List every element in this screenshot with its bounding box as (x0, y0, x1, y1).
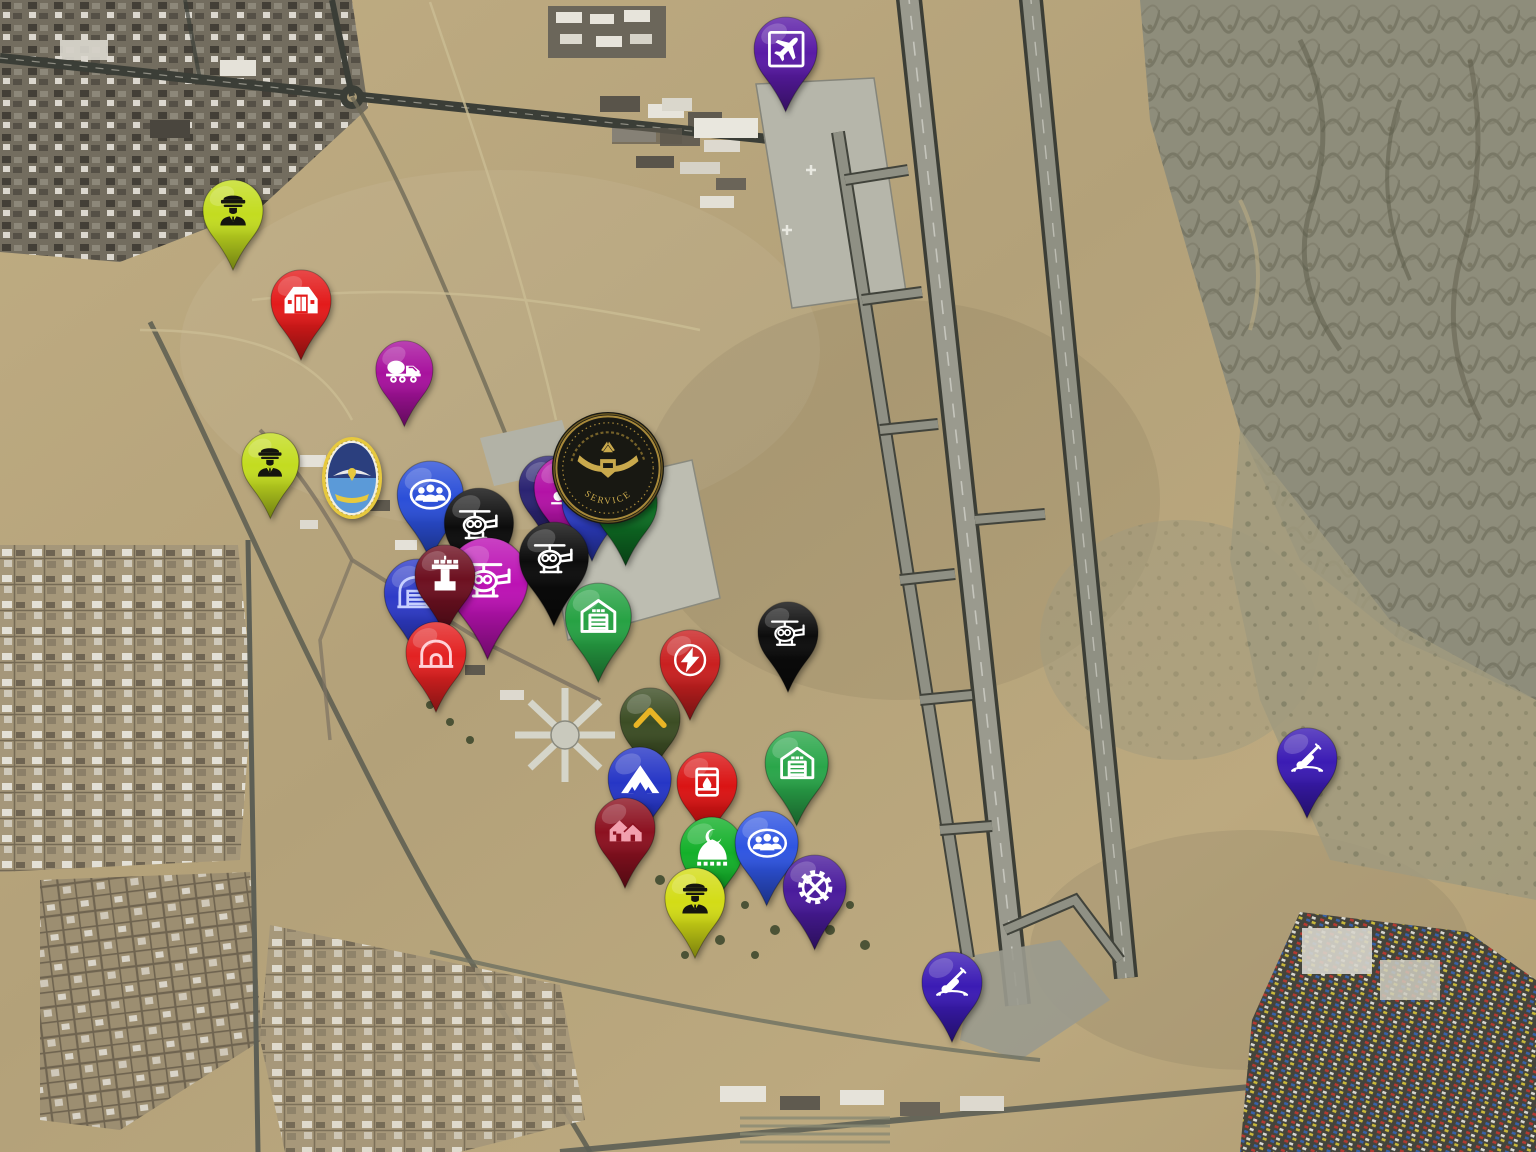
airforce-crest-emblem[interactable] (321, 436, 383, 520)
marker-warehouse-c[interactable] (562, 581, 635, 684)
marker-maintenance[interactable] (780, 853, 849, 952)
marker-airport[interactable] (751, 15, 820, 114)
marker-officer-s[interactable] (662, 866, 728, 960)
satellite-imagery (0, 0, 1536, 1152)
mixer-truck-icon (382, 349, 426, 391)
helicopter-icon (527, 532, 580, 583)
marker-aa-gun-e[interactable] (1274, 726, 1340, 820)
marker-hangar-nw[interactable] (268, 268, 334, 362)
hangar-icon (278, 278, 324, 322)
marker-helicopter-4[interactable] (755, 600, 821, 694)
marker-mixer-truck[interactable] (373, 339, 436, 428)
officer-icon (210, 188, 256, 232)
marker-aa-gun-s[interactable] (919, 950, 985, 1044)
chevron-icon (627, 696, 673, 740)
lightning-icon (667, 638, 713, 682)
officer-icon (248, 441, 292, 483)
airforce-crest-graphic (321, 436, 383, 520)
marker-arch-shelter[interactable] (403, 620, 469, 714)
officer-icon (672, 876, 718, 920)
gear-tools-icon (791, 864, 840, 910)
aa-gun-icon (929, 960, 975, 1004)
helicopter-icon (765, 610, 811, 654)
airplane-icon (762, 26, 811, 72)
aa-gun-icon (1284, 736, 1330, 780)
warehouse-icon (773, 740, 822, 786)
service-coin-emblem[interactable]: SERVICE (550, 410, 666, 526)
arch-icon (413, 630, 459, 674)
service-coin-graphic: SERVICE (550, 410, 666, 526)
marker-housing[interactable] (592, 796, 658, 890)
satellite-map[interactable]: SERVICE (0, 0, 1536, 1152)
fuel-barrel-icon (684, 760, 730, 804)
warehouse-icon (573, 592, 624, 641)
houses-icon (602, 806, 648, 850)
control-tower-icon (422, 553, 468, 597)
marker-officer-nw[interactable] (200, 178, 266, 272)
marker-officer-w[interactable] (239, 431, 302, 520)
